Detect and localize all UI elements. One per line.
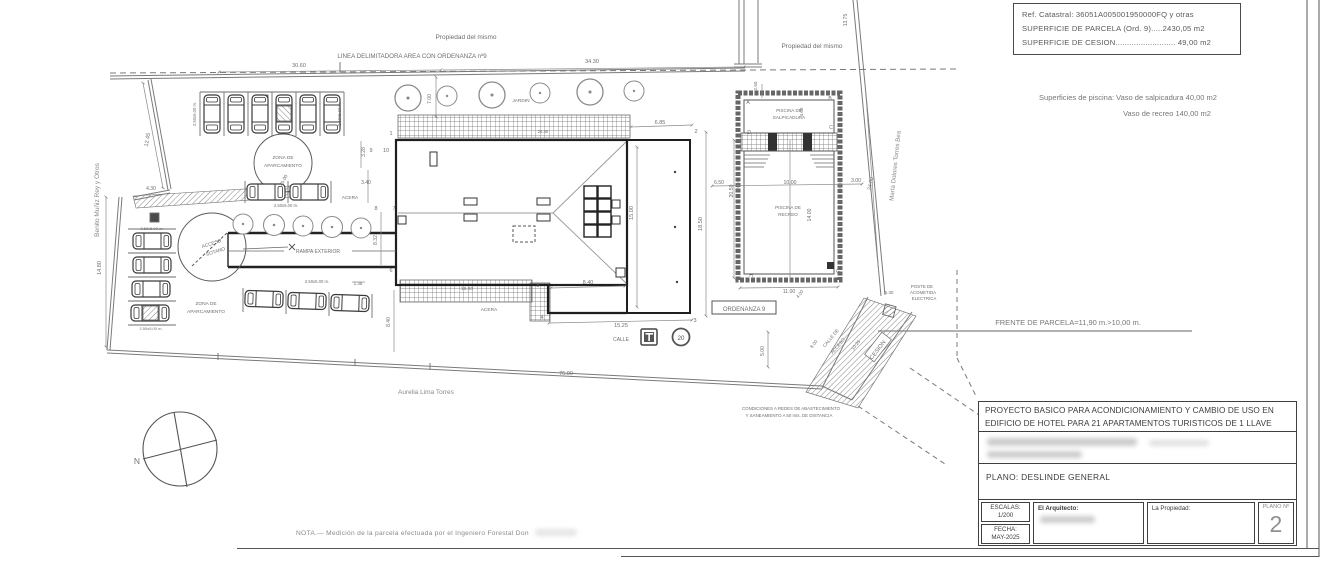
car-symbol [252, 95, 268, 133]
street-benito-muniz: Benito Muñiz Rey y Otros [94, 162, 101, 236]
label-propiedad-del-mismo-2: Propiedad del mismo [781, 43, 842, 50]
tree-symbol [322, 217, 343, 238]
plano-row: PLANO: DESLINDE GENERAL [979, 464, 1296, 500]
dim-8-40-h: 8.40 [583, 280, 594, 286]
vertex-3: 3 [693, 318, 696, 324]
plano-title: PLANO: DESLINDE GENERAL [986, 472, 1110, 482]
pool-corner-d: D [747, 130, 751, 136]
label-rampa-exterior: RAMPA EXTERIOR [296, 249, 340, 255]
redacted-text-smudge [987, 451, 1082, 458]
vertex-2: 2 [694, 129, 697, 135]
dim-5-00: 5.00 [760, 346, 766, 356]
cesion-hatch [806, 298, 916, 408]
parking-sign-icon [150, 213, 159, 222]
fecha-label: FECHA: [982, 526, 1029, 534]
project-title-row: PROYECTO BASICO PARA ACONDICIONAMIENTO Y… [979, 402, 1296, 432]
plan-text-layer: Propiedad del mismoLINEA DELIMITADORA AR… [94, 14, 1217, 466]
dim-6-85: 6.85 [655, 120, 666, 126]
label-poste-c: ELECTRICA [912, 296, 937, 301]
dim-4-00-pool: 4.00 [799, 107, 804, 116]
street-maria-dolores: María Dolores Torres Bea [888, 130, 902, 201]
tree-symbol [293, 216, 313, 236]
label-acera-2: ACERA [481, 307, 498, 313]
label-ordenanza-9: ORDENANZA 9 [723, 307, 766, 313]
pool-corner-g: G [836, 269, 840, 275]
vertex-10: 10 [383, 148, 389, 154]
pool-corner-b: B [828, 96, 832, 102]
annex-dots [674, 171, 678, 283]
dim-11-00: 11.00 [783, 289, 796, 295]
car-symbol [133, 257, 171, 273]
escalas-value: 1/200 [982, 512, 1029, 520]
arquitecto-box: El Arquitecto: [1033, 502, 1144, 544]
redacted-text-smudge [1149, 440, 1209, 446]
car-symbol [290, 184, 328, 200]
dim-16-00: 16.00 [461, 286, 473, 292]
stall-size: 2.50x5.00 m. [140, 226, 163, 231]
ref-catastral-line: Ref. Catastral: 36051A005001950000FQ y o… [1022, 8, 1240, 22]
compass-north-label: N [134, 456, 140, 466]
vertex-6: 6 [389, 268, 392, 274]
redacted-signature-smudge [1040, 516, 1095, 523]
dim-1-38: 1.38 [354, 281, 363, 286]
redacted-name-smudge [535, 529, 577, 536]
car-symbol [288, 292, 327, 309]
label-jardin: JARDIN [512, 98, 530, 104]
dim-14-00: 14.00 [807, 208, 813, 221]
nota-line: NOTA.— Medición de la parcela efectuada … [296, 528, 573, 537]
redacted-row [979, 432, 1296, 464]
tree-symbol [479, 82, 505, 108]
dim-24-00: 24.00 [867, 177, 876, 191]
dim-3-40: 3.40 [361, 180, 371, 186]
dim-4-30: 4.30 [146, 186, 156, 192]
pool-walkway [741, 133, 837, 151]
pool-skimmer [827, 262, 834, 269]
label-condiciones-b: Y SANEAMIENTO A 50 mts. DE DISTANCIA [746, 413, 833, 418]
dim-14-80: 14.80 [97, 261, 103, 275]
dead-end-sign-icon [641, 329, 657, 345]
dim-5-30: 5.30 [885, 290, 894, 295]
label-acera-1: ACERA [342, 195, 359, 201]
vertex-7: 7 [392, 206, 395, 212]
vertex-9: 9 [369, 148, 372, 154]
label-zona-aparcamiento-2b: APARCAMIENTO [187, 309, 225, 315]
arquitecto-label: El Arquitecto: [1038, 505, 1078, 512]
vertex-4: 4 [540, 315, 543, 321]
stall-size: 2.50x5.00 m. [337, 102, 342, 126]
tree-symbol [264, 215, 285, 236]
dim-2-50: 2.50 [753, 81, 758, 90]
cadastral-info-box: Ref. Catastral: 36051A005001950000FQ y o… [1013, 3, 1241, 55]
label-poste-b: ACOMETIDA [910, 290, 936, 295]
propiedad-label: La Propiedad: [1152, 505, 1191, 512]
dim-34-30: 34.30 [585, 59, 599, 65]
tree-symbol [233, 214, 253, 234]
car-symbol [331, 294, 370, 311]
dashed-detail-rect [513, 226, 535, 242]
dim-8-00: 8.00 [809, 339, 819, 349]
label-piscina-recreo-b: RECREO [778, 212, 798, 217]
superficie-cesion-line: SUPERFICIE DE CESION....................… [1022, 36, 1240, 50]
label-zona-aparcamiento-1a: ZONA DE [272, 155, 293, 161]
power-pole-icon [883, 304, 896, 317]
dim-15-00: 15.00 [629, 206, 635, 220]
stall-size: 2.50x5.00 m. [139, 326, 162, 331]
tree-symbol [351, 218, 371, 238]
stall-size: 2.50x5.00 m. [192, 102, 197, 126]
escalas-fecha-column: ESCALAS: 1/200 FECHA: MAY-2025 [981, 502, 1030, 544]
dim-13-75: 13.75 [843, 14, 849, 27]
escalas-box: ESCALAS: 1/200 [981, 502, 1030, 522]
note-superficies-2: Vaso de recreo 140,00 m2 [1123, 109, 1211, 118]
stall-size: 2.50x5.00 m. [305, 279, 329, 284]
tree-symbol [530, 83, 550, 103]
dim-12-45: 12.45 [144, 133, 152, 148]
dim-3-28: 3.28 [361, 147, 367, 157]
label-calle: CALLE [613, 337, 630, 343]
tree-symbol [437, 86, 457, 106]
car-symbol [245, 290, 284, 307]
plano-number-box: PLANO Nº 2 [1258, 502, 1294, 544]
car-symbol [131, 305, 169, 321]
skylight-grid [584, 186, 611, 237]
project-title-line2: EDIFICIO DE HOTEL PARA 21 APARTAMENTOS T… [985, 418, 1291, 431]
compass-rose [143, 412, 217, 487]
car-symbol [133, 233, 171, 249]
redacted-text-smudge [987, 438, 1137, 446]
dim-18-50: 18.50 [698, 217, 704, 231]
fecha-box: FECHA: MAY-2025 [981, 524, 1030, 544]
tree-symbol [624, 81, 644, 101]
car-symbol [204, 95, 220, 133]
nota-text: NOTA.— Medición de la parcela efectuada … [296, 530, 529, 537]
dim-4-00-se: 4.00 [795, 289, 805, 299]
pool-steps [744, 155, 834, 167]
car-symbol [132, 281, 170, 297]
label-frente-parcela: FRENTE DE PARCELA=11,90 m.>10,00 m. [995, 318, 1141, 327]
label-propiedad-del-mismo-1: Propiedad del mismo [435, 34, 496, 41]
superficie-parcela-line: SUPERFICIE DE PARCELA (Ord. 9).....2430,… [1022, 22, 1240, 36]
dim-30-60: 30.60 [292, 63, 306, 69]
vertex-8: 8 [374, 206, 377, 212]
vertex-1: 1 [389, 131, 392, 137]
label-zona-aparcamiento-2a: ZONA DE [195, 301, 216, 307]
propiedad-box: La Propiedad: [1147, 502, 1255, 544]
car-symbol [276, 95, 292, 133]
dim-20-50: 20.50 [729, 184, 735, 197]
tree-symbol [395, 85, 421, 111]
pool-corner-h: H [749, 273, 753, 279]
label-condiciones-a: CONDICIONES A REDES DE ABASTECIMIENTO [742, 406, 841, 411]
dim-76-00: 76.00 [559, 371, 573, 377]
dim-3-00: 3.00 [851, 178, 861, 184]
fecha-value: MAY-2025 [982, 534, 1029, 542]
dim-10-00: 10.00 [784, 180, 797, 186]
car-symbol [228, 95, 244, 133]
title-block-footer: ESCALAS: 1/200 FECHA: MAY-2025 El Arquit… [979, 500, 1296, 546]
dim-7-00: 7.00 [427, 94, 433, 104]
sign-speed-value: 20 [678, 336, 685, 342]
stall-size: 2.50x5.00 m. [274, 203, 298, 208]
project-title-line1: PROYECTO BASICO PARA ACONDICIONAMIENTO Y… [985, 405, 1291, 418]
dim-15-25: 15.25 [614, 323, 628, 329]
plano-number-value: 2 [1259, 510, 1293, 540]
car-symbol [300, 95, 316, 133]
label-poste-a: POSTE DE [911, 284, 933, 289]
plan-sheet: Propiedad del mismoLINEA DELIMITADORA AR… [0, 0, 1321, 562]
title-block: PROYECTO BASICO PARA ACONDICIONAMIENTO Y… [978, 401, 1297, 546]
street-aurelia-lima: Aurelia Lima Torres [398, 389, 455, 396]
building-annex [627, 140, 690, 313]
dim-6-50: 6.50 [714, 180, 724, 186]
car-symbol [247, 184, 285, 200]
label-zona-aparcamiento-1b: APARCAMIENTO [264, 163, 302, 169]
dim-24-40: 24.40 [538, 129, 549, 134]
tree-symbol [577, 79, 603, 105]
pool-complex [738, 93, 840, 280]
dim-8-40-v: 8.40 [386, 317, 392, 327]
dim-8-32: 8.32 [373, 235, 379, 245]
note-superficies-1: Superficies de piscina: Vaso de salpicad… [1039, 93, 1217, 102]
label-linea-delimitadora: LINEA DELIMITADORA AREA CON ORDENANZA nº… [337, 53, 487, 60]
pool-corner-a: A [746, 100, 750, 106]
pool-corner-c: C [829, 125, 833, 131]
escalas-label: ESCALAS: [982, 504, 1029, 512]
building-south-step [548, 285, 627, 313]
label-piscina-recreo-a: PISCINA DE [775, 205, 801, 210]
ramp-x-mark [289, 244, 295, 250]
vertex-5: 5 [536, 283, 539, 289]
